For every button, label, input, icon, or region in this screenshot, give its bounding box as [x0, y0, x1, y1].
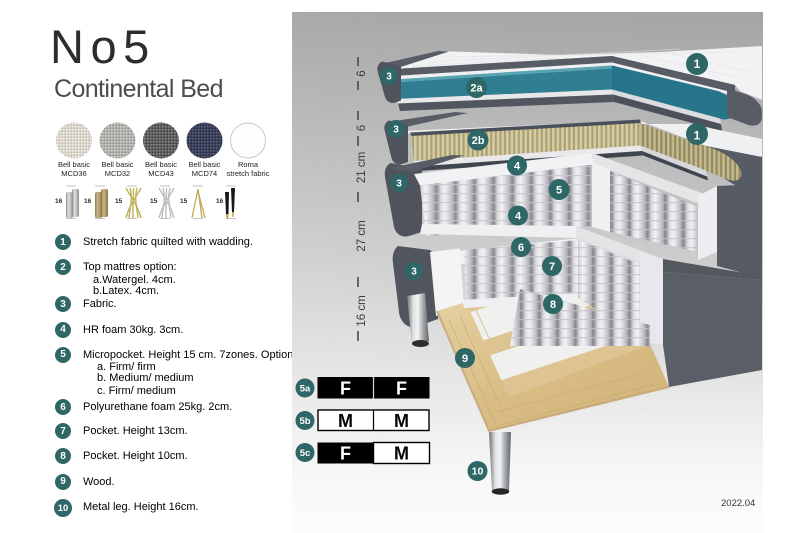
svg-text:F: F [340, 444, 351, 464]
svg-text:3: 3 [411, 267, 417, 278]
svg-text:10: 10 [472, 466, 484, 478]
svg-text:3: 3 [393, 125, 399, 136]
svg-text:27 cm: 27 cm [356, 220, 368, 251]
svg-text:2b: 2b [472, 135, 485, 147]
svg-text:6: 6 [356, 125, 368, 131]
svg-text:16 cm: 16 cm [356, 295, 368, 326]
svg-text:21 cm: 21 cm [356, 152, 368, 183]
svg-text:6: 6 [518, 242, 524, 254]
svg-text:7: 7 [549, 261, 555, 273]
svg-text:5: 5 [556, 184, 562, 196]
svg-text:8: 8 [550, 299, 556, 311]
svg-text:3: 3 [396, 179, 402, 190]
svg-text:1: 1 [694, 129, 701, 143]
svg-text:4: 4 [515, 210, 522, 222]
svg-text:5c: 5c [300, 448, 311, 459]
svg-text:F: F [396, 379, 407, 399]
svg-text:3: 3 [386, 72, 392, 83]
svg-text:M: M [394, 444, 409, 464]
svg-text:5b: 5b [299, 416, 310, 427]
svg-text:6: 6 [356, 70, 368, 76]
svg-text:M: M [338, 411, 353, 431]
svg-text:2a: 2a [470, 82, 483, 94]
svg-text:F: F [340, 379, 351, 399]
svg-text:4: 4 [514, 160, 521, 172]
svg-text:5a: 5a [300, 383, 311, 394]
svg-text:M: M [394, 411, 409, 431]
svg-text:2022.04: 2022.04 [721, 498, 755, 509]
svg-text:9: 9 [462, 353, 468, 365]
svg-text:1: 1 [694, 57, 701, 71]
